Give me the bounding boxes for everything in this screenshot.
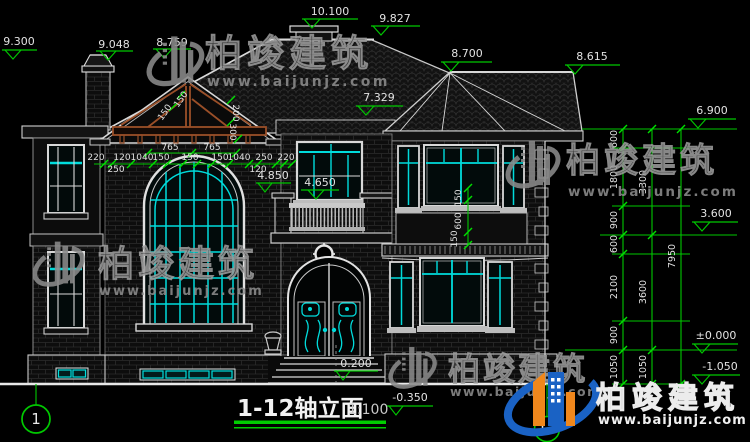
brand-logo-name: 柏竣建筑 (596, 381, 740, 416)
bay-window-1f (387, 258, 515, 333)
dim-value: 150 (152, 153, 169, 163)
watermark-url: www.baijunjz.com (207, 74, 390, 90)
elevation-label: ±0.000 (696, 329, 737, 342)
basement-vent-center (140, 369, 235, 380)
elevation-label: 10.100 (311, 5, 350, 18)
axis-number: 1 (31, 410, 41, 428)
watermark-brand: 柏竣建筑 (566, 141, 718, 181)
elevation-drawing-canvas: 9.300 9.048 8.759 10.100 9.827 8.700 8.6… (0, 0, 750, 442)
dim-value: 220 (277, 153, 294, 163)
dim-value: 765 (161, 143, 178, 153)
elevation-label: 8.700 (451, 47, 483, 60)
dim-value: 200 (230, 104, 240, 121)
dim-value: 150 (450, 230, 460, 247)
dim-value: 600 (454, 212, 464, 229)
drawing-scale: 1:100 (348, 402, 388, 418)
dim-value: 120 (113, 153, 130, 163)
dim-value: 150 (211, 153, 228, 163)
elevation-label: 9.827 (379, 12, 411, 25)
dim-value: 600 (609, 235, 620, 253)
left-eave-band (22, 126, 108, 138)
left-window-2f (44, 145, 88, 219)
dim-value: 1040 (131, 153, 154, 163)
elevation-label: 7.329 (363, 91, 395, 104)
center-eave-band (276, 120, 395, 135)
elevation-label: 9.300 (3, 35, 35, 48)
drawing-title: 1-12轴立面 (237, 395, 364, 422)
dim-value: 250 (255, 153, 272, 163)
watermark-url: www.baijunjz.com (99, 284, 264, 299)
dim-value: 120 (249, 165, 266, 175)
elevation-label: 9.048 (98, 38, 130, 51)
brand-logo-url: www.baijunjz.com (598, 413, 747, 428)
elevation-label: 6.900 (696, 104, 728, 117)
watermark-brand: 柏竣建筑 (205, 32, 373, 75)
elevation-label: 0.200 (340, 357, 372, 370)
dim-value: 2100 (609, 275, 620, 299)
dim-value: 765 (203, 143, 220, 153)
dim-value: 7950 (667, 244, 678, 268)
cad-elevation-screenshot: 9.300 9.048 8.759 10.100 9.827 8.700 8.6… (0, 0, 750, 442)
flower-urn (265, 332, 281, 354)
left-chimney (82, 55, 114, 130)
dim-value: 3600 (638, 280, 649, 304)
dim-value: 1050 (609, 355, 620, 379)
dim-value: 300 (227, 123, 237, 140)
watermark-brand: 柏竣建筑 (98, 244, 258, 285)
dim-value: 250 (107, 165, 124, 175)
elevation-label: 4.650 (304, 176, 336, 189)
entry-door (288, 257, 370, 358)
dim-value: 1050 (638, 355, 649, 379)
balcony-slab (271, 233, 395, 243)
dim-value: 220 (87, 153, 104, 163)
basement-vent-left (56, 368, 88, 379)
elevation-label: 8.615 (576, 50, 608, 63)
dim-value: 1040 (228, 153, 251, 163)
title-underline-thin (234, 427, 386, 429)
dim-value: 150 (454, 189, 464, 206)
elevation-label: -0.350 (392, 391, 427, 404)
title-underline-thick (234, 421, 386, 425)
watermark-brand: 柏竣建筑 (448, 350, 588, 388)
dim-value: 150 (181, 153, 198, 163)
elevation-label: 3.600 (700, 207, 732, 220)
dim-value: 900 (609, 326, 620, 344)
balcony-window (293, 142, 366, 205)
dim-value: 900 (609, 211, 620, 229)
watermark-url: www.baijunjz.com (568, 184, 738, 200)
elevation-label: -1.050 (702, 360, 737, 373)
